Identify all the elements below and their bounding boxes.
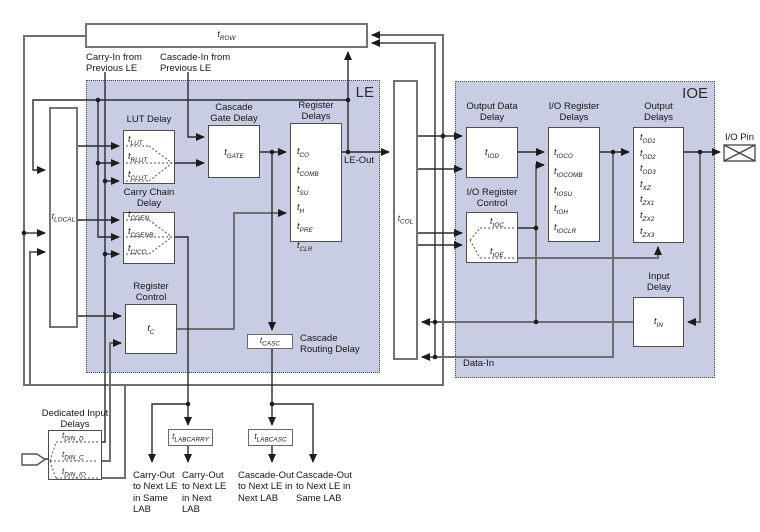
t-c-label: tC bbox=[147, 323, 154, 333]
io-register-control-title: I/O Register Control bbox=[462, 188, 522, 210]
t-comb-label: tCOMB bbox=[297, 163, 319, 182]
io-register-delays-title: I/O Register Delays bbox=[538, 102, 610, 124]
data-in-label: Data-In bbox=[463, 358, 494, 369]
t-cgenr-label: tCGENR bbox=[128, 226, 154, 239]
dedicated-input-delays-title: Dedicated Input Delays bbox=[32, 409, 118, 431]
t-row-label: tROW bbox=[217, 29, 235, 42]
t-rlut-label: tRLUT bbox=[128, 151, 147, 164]
t-zx1-label: tZX1 bbox=[640, 194, 656, 210]
t-h-label: tH bbox=[297, 200, 319, 219]
t-labcarry-box: tLABCARRY bbox=[168, 429, 213, 446]
register-control-title: Register Control bbox=[121, 282, 181, 304]
t-in-label: tIN bbox=[654, 316, 663, 326]
t-iosu-label: tIOSU bbox=[554, 183, 583, 202]
io-pin-label: I/O Pin bbox=[719, 132, 760, 143]
t-clut-label: tCLUT bbox=[128, 169, 147, 182]
t-gate-label: tGATE bbox=[224, 147, 244, 157]
t-od2-label: tOD2 bbox=[640, 148, 656, 164]
local-interconnect-bar: tLOCAL bbox=[49, 107, 78, 328]
carry-chain-title: Carry Chain Delay bbox=[118, 188, 180, 210]
t-local-label: tLOCAL bbox=[52, 212, 75, 224]
io-pin-icon bbox=[724, 145, 755, 161]
t-od3-label: tOD3 bbox=[640, 163, 656, 179]
t-ioh-label: tIOH bbox=[554, 201, 583, 220]
t-labcasc-box: tLABCASC bbox=[248, 429, 293, 446]
t-od1-label: tOD1 bbox=[640, 132, 656, 148]
t-ioc-label: tIOC bbox=[490, 216, 504, 229]
t-col-label: tCOL bbox=[398, 214, 413, 226]
timing-model-diagram: LE IOE tROW tLOCAL tCOL Carry-In from Pr… bbox=[0, 0, 760, 532]
t-pre-label: tPRE bbox=[297, 219, 319, 238]
t-cgen-label: tCGEN bbox=[128, 209, 149, 222]
t-c-label-wrap: tC bbox=[125, 323, 177, 336]
register-delays-list: tCO tCOMB tSU tH tPRE tCLR bbox=[297, 144, 319, 257]
t-din-io-label: tDIN_IO bbox=[62, 467, 86, 479]
cascade-routing-title: Cascade Routing Delay bbox=[300, 333, 366, 356]
cascade-gate-title: Cascade Gate Delay bbox=[204, 103, 264, 125]
register-delays-title: Register Delays bbox=[286, 101, 346, 123]
t-iocomb-label: tIOCOMB bbox=[554, 164, 583, 183]
output-data-delay-title: Output Data Delay bbox=[462, 102, 522, 124]
t-ioe-label: tIOE bbox=[490, 246, 504, 259]
input-delay-title: Input Delay bbox=[636, 272, 682, 294]
t-su-label: tSU bbox=[297, 182, 319, 201]
t-casc-box: tCASC bbox=[247, 334, 293, 349]
t-in-label-wrap: tIN bbox=[633, 316, 684, 329]
t-iod-label-wrap: tIOD bbox=[466, 147, 518, 160]
local-input-wire-3 bbox=[30, 252, 45, 385]
t-ioco-label: tIOCO bbox=[554, 145, 583, 164]
output-delays-list: tOD1 tOD2 tOD3 tXZ tZX1 tZX2 tZX3 bbox=[640, 132, 656, 241]
dedicated-input-pin-icon bbox=[22, 454, 45, 465]
t-iod-label: tIOD bbox=[485, 147, 499, 157]
column-interconnect-bar: tCOL bbox=[393, 80, 418, 360]
cascade-out-next-lab-label: Cascade-Out to Next LE in Next LAB bbox=[238, 470, 294, 504]
t-zx2-label: tZX2 bbox=[640, 210, 656, 226]
din-io-riser-wire bbox=[102, 386, 125, 478]
t-lut-label: tLUT bbox=[128, 134, 143, 147]
cascade-in-label: Cascade-In from Previous LE bbox=[160, 52, 234, 75]
le-out-label: LE-Out bbox=[344, 155, 374, 166]
carry-in-label: Carry-In from Previous LE bbox=[86, 52, 150, 75]
t-din-d-label: tDIN_D bbox=[62, 431, 84, 443]
t-labcasc-label: tLABCASC bbox=[254, 432, 286, 444]
t-clr-label: tCLR bbox=[297, 238, 319, 257]
output-delays-title: Output Delays bbox=[630, 102, 687, 124]
t-cico-label: tCICO bbox=[128, 243, 147, 256]
t-casc-label: tCASC bbox=[260, 336, 280, 348]
t-labcarry-label: tLABCARRY bbox=[172, 432, 209, 444]
le-region-label: LE bbox=[330, 84, 374, 101]
row-interconnect-bar: tROW bbox=[85, 23, 368, 48]
ioe-region-label: IOE bbox=[660, 85, 708, 102]
t-zx3-label: tZX3 bbox=[640, 226, 656, 242]
t-din-c-label: tDIN_C bbox=[62, 450, 84, 462]
lut-delay-title: LUT Delay bbox=[110, 115, 188, 126]
t-xz-label: tXZ bbox=[640, 179, 656, 195]
carry-out-next-lab-label: Carry-Out to Next LE in Next LAB bbox=[182, 470, 228, 516]
t-gate-label-wrap: tGATE bbox=[208, 147, 260, 160]
io-register-delays-list: tIOCO tIOCOMB tIOSU tIOH tIOCLR bbox=[554, 145, 583, 239]
t-ioclr-label: tIOCLR bbox=[554, 220, 583, 239]
t-co-label: tCO bbox=[297, 144, 319, 163]
cascade-out-same-lab-label: Cascade-Out to Next LE in Same LAB bbox=[296, 470, 352, 504]
carry-out-same-lab-label: Carry-Out to Next LE in Same LAB bbox=[133, 470, 179, 516]
